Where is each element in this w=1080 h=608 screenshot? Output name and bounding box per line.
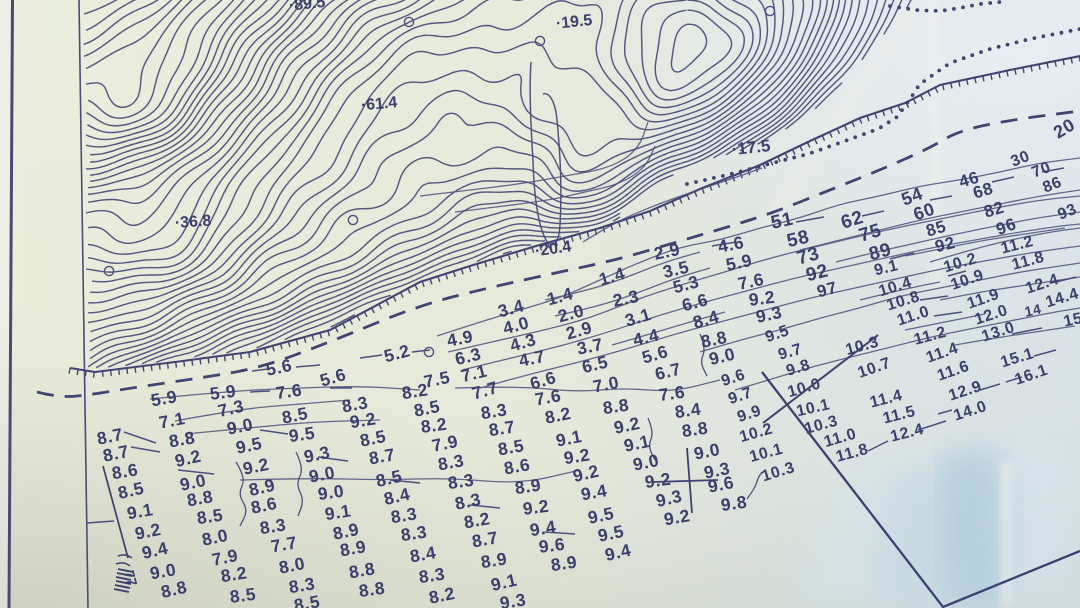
- svg-text:9.2: 9.2: [522, 496, 551, 519]
- svg-text:8.8: 8.8: [681, 418, 710, 441]
- svg-text:8.2: 8.2: [219, 562, 248, 586]
- svg-text:9.3: 9.3: [498, 589, 527, 608]
- svg-text:9.0: 9.0: [317, 481, 346, 504]
- svg-text:8.9: 8.9: [550, 552, 579, 575]
- svg-text:8.3: 8.3: [418, 564, 447, 587]
- svg-text:8.9: 8.9: [479, 548, 508, 572]
- svg-text:8.5: 8.5: [229, 584, 258, 607]
- svg-text:9.5: 9.5: [288, 423, 317, 446]
- svg-text:9.8: 9.8: [720, 492, 749, 515]
- svg-text:15: 15: [1062, 310, 1080, 331]
- svg-text:8.5: 8.5: [196, 505, 225, 528]
- svg-text:8.9: 8.9: [514, 475, 543, 498]
- svg-text:8.8: 8.8: [358, 578, 387, 601]
- svg-text:8.3: 8.3: [400, 522, 429, 545]
- svg-text:·36.8: ·36.8: [174, 212, 212, 232]
- svg-text:7.6: 7.6: [275, 380, 304, 403]
- svg-text:·61.4: ·61.4: [360, 94, 398, 114]
- svg-text:·17.5: ·17.5: [731, 136, 772, 159]
